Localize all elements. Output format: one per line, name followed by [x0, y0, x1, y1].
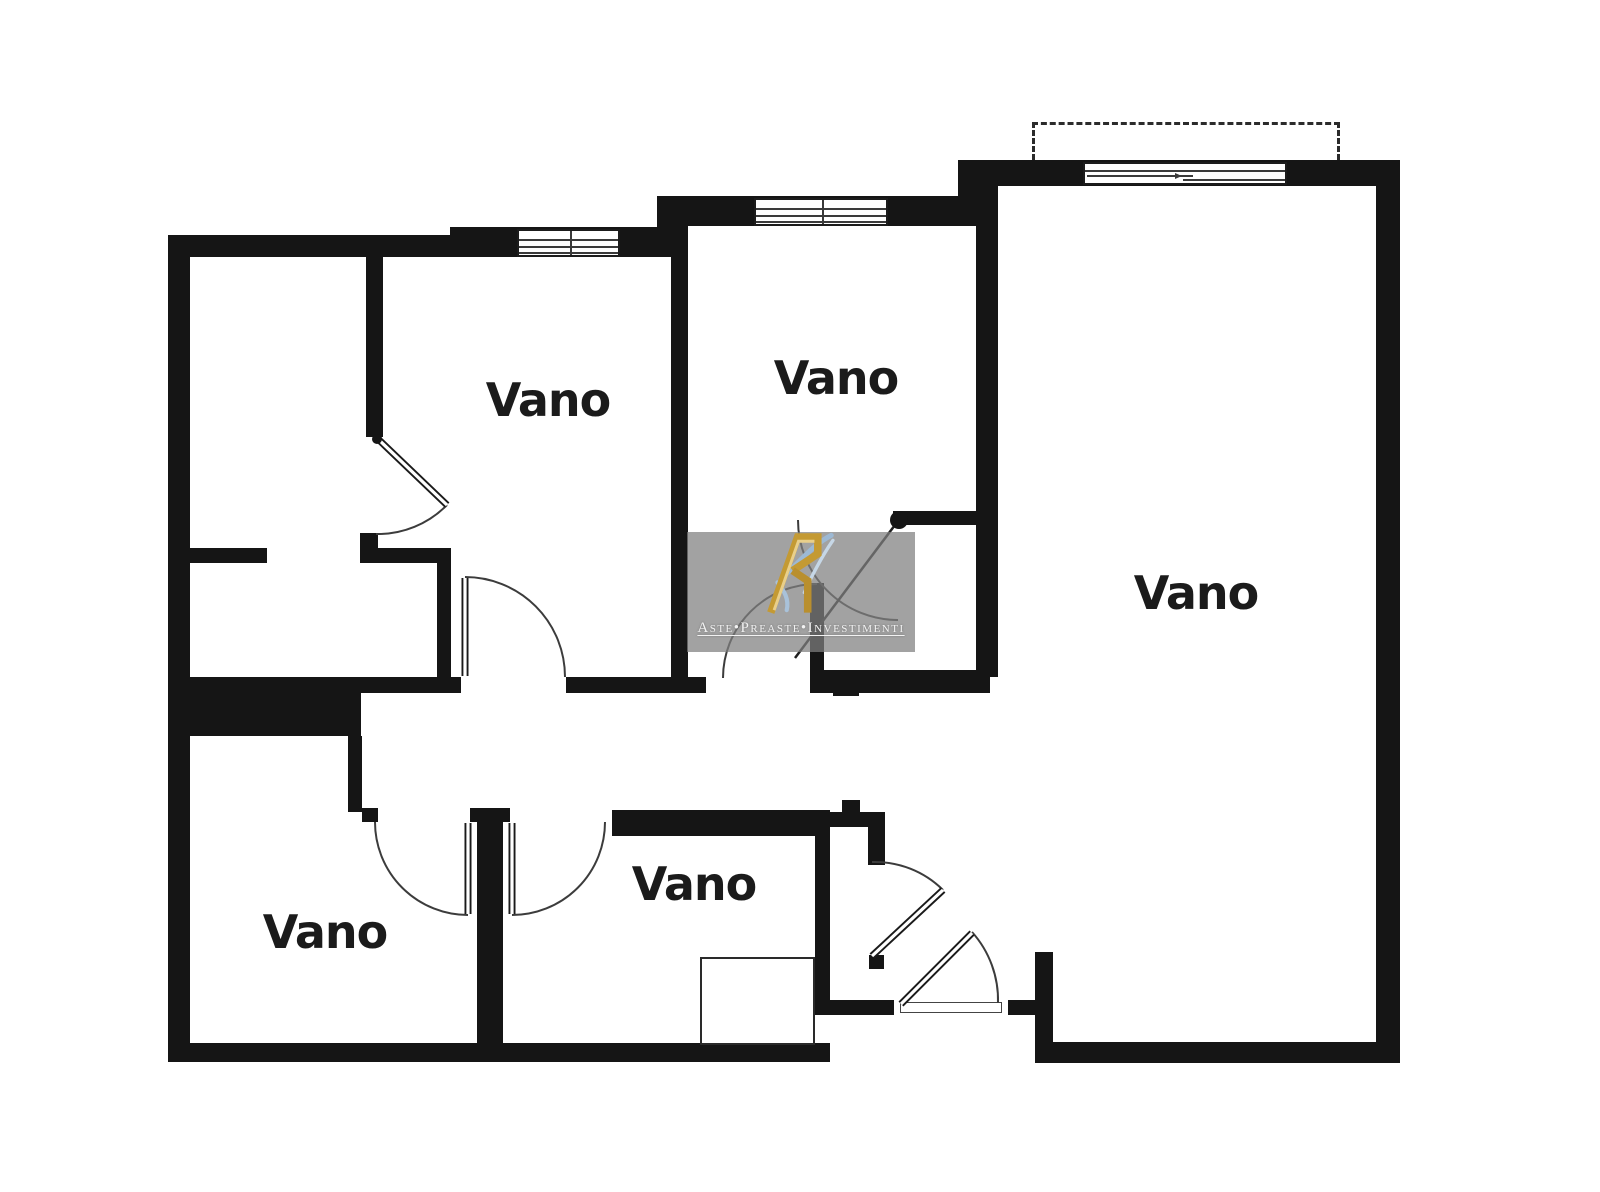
door-leaf: [872, 890, 943, 956]
room-label-vano-3: Vano: [1134, 566, 1258, 620]
room-label-vano-1: Vano: [486, 373, 610, 427]
door-swing-arc: [512, 822, 605, 915]
door-swing-arc: [376, 505, 447, 534]
door-swing-arc: [465, 577, 565, 677]
watermark-text: Aste•Preaste•Investimenti: [697, 620, 904, 637]
door-swing-arc: [375, 822, 468, 915]
door-hinge: [372, 434, 382, 444]
floor-plan: VanoVanoVanoVanoVano Aste•Preaste•Invest…: [0, 0, 1600, 1192]
room-label-vano-4: Vano: [263, 905, 387, 959]
watermark: Aste•Preaste•Investimenti: [687, 532, 915, 652]
room-label-vano-2: Vano: [774, 351, 898, 405]
door-swing-arc: [872, 862, 943, 890]
door-swing-arc: [972, 932, 998, 1003]
door-hinge: [890, 511, 908, 529]
door-leaf: [378, 439, 447, 505]
door-leaf: [901, 933, 972, 1004]
room-label-vano-5: Vano: [632, 857, 756, 911]
brand-logo-icon: [757, 532, 845, 620]
